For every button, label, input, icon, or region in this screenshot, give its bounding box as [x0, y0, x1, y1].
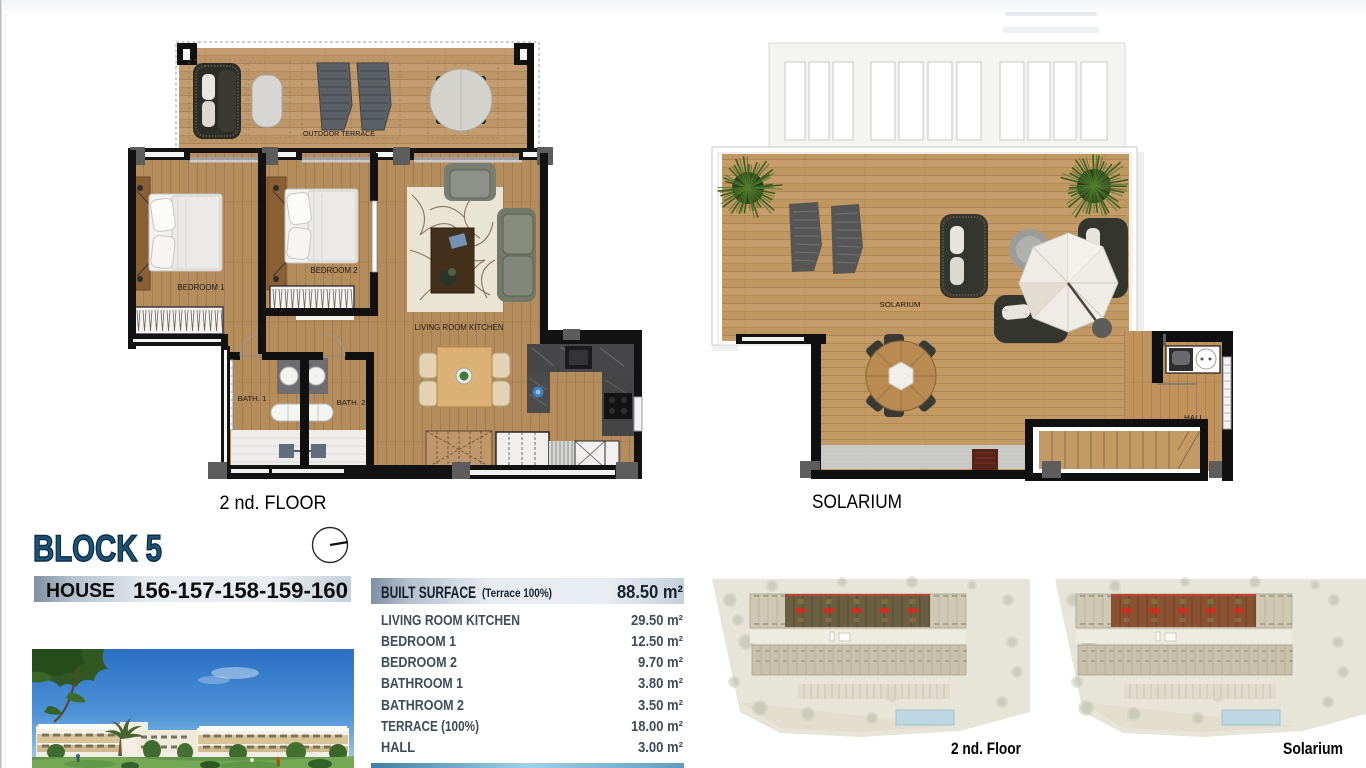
svg-text:HALL: HALL	[1184, 413, 1204, 422]
svg-text:3.00 m²: 3.00 m²	[638, 740, 683, 756]
svg-text:BATH. 2: BATH. 2	[337, 400, 366, 407]
svg-text:TERRACE (100%): TERRACE (100%)	[381, 719, 479, 735]
svg-text:3.80 m²: 3.80 m²	[638, 676, 683, 692]
svg-text:BATHROOM 1: BATHROOM 1	[381, 676, 463, 692]
svg-text:HOUSE: HOUSE	[46, 580, 115, 602]
svg-text:12.50 m²: 12.50 m²	[631, 634, 683, 650]
svg-text:29.50 m²: 29.50 m²	[631, 613, 683, 629]
svg-text:(Terrace 100%): (Terrace 100%)	[482, 588, 552, 600]
svg-text:BUILT SURFACE: BUILT SURFACE	[381, 583, 476, 602]
svg-text:Solarium: Solarium	[1283, 740, 1343, 758]
svg-text:HALL: HALL	[381, 740, 415, 756]
svg-text:3.50 m²: 3.50 m²	[638, 698, 683, 714]
svg-text:BEDROOM 2: BEDROOM 2	[311, 266, 359, 275]
svg-text:2 nd. Floor: 2 nd. Floor	[951, 740, 1021, 758]
svg-text:BEDROOM 1: BEDROOM 1	[178, 283, 226, 292]
svg-text:88.50 m²: 88.50 m²	[617, 582, 683, 602]
svg-text:BEDROOM 1: BEDROOM 1	[381, 634, 456, 650]
svg-text:OUTDOOR TERRACE: OUTDOOR TERRACE	[303, 129, 375, 138]
svg-text:SOLARIUM: SOLARIUM	[880, 300, 921, 309]
svg-text:BATH. 1: BATH. 1	[238, 396, 267, 403]
svg-text:SOLARIUM: SOLARIUM	[812, 492, 902, 513]
svg-text:156-157-158-159-160: 156-157-158-159-160	[133, 578, 348, 603]
svg-text:BATHROOM 2: BATHROOM 2	[381, 698, 464, 714]
svg-text:2 nd. FLOOR: 2 nd. FLOOR	[220, 493, 327, 514]
svg-text:LIVING ROOM KITCHEN: LIVING ROOM KITCHEN	[415, 323, 504, 332]
svg-text:9.70 m²: 9.70 m²	[638, 655, 683, 671]
svg-text:BLOCK 5: BLOCK 5	[33, 528, 162, 569]
svg-text:18.00 m²: 18.00 m²	[631, 719, 683, 735]
svg-text:BEDROOM 2: BEDROOM 2	[381, 655, 457, 671]
svg-text:LIVING ROOM KITCHEN: LIVING ROOM KITCHEN	[381, 613, 520, 629]
